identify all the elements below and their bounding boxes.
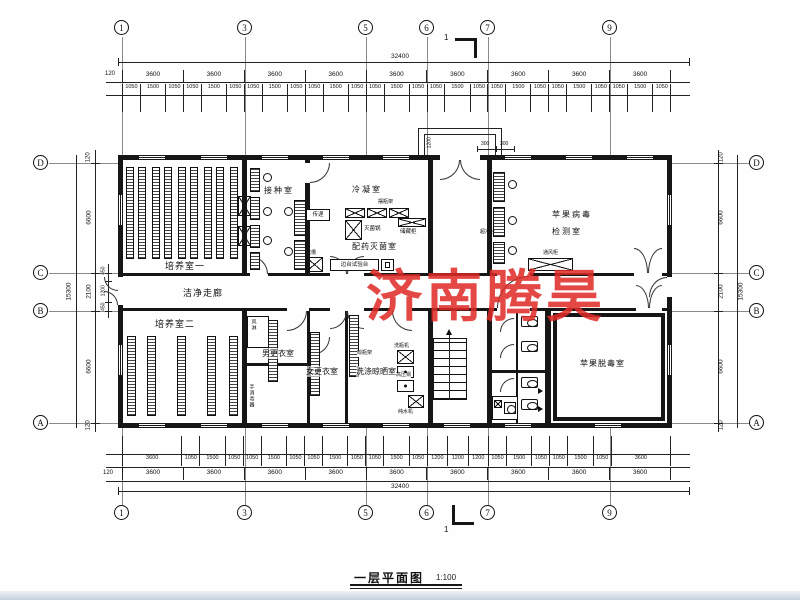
dim-value: 1050 — [305, 84, 323, 95]
dim-overall-right: 15300 — [737, 279, 744, 305]
dim-line — [118, 491, 690, 492]
culture-rack-icon — [229, 336, 238, 416]
pass-window-box: 传递 — [306, 209, 330, 221]
culture-rack-icon — [207, 336, 216, 416]
dim-value: 1050 — [122, 84, 140, 95]
dim-value: 1050 — [348, 84, 366, 95]
room-label-culture1: 培养室一 — [150, 259, 220, 272]
dim-offset-bottom: 120 — [103, 470, 113, 477]
grid-line-D — [49, 163, 118, 164]
dim-value: 1500 — [566, 84, 591, 95]
dim-value: 1050 — [487, 95, 505, 112]
dim-entrance-300a: 300 — [481, 142, 489, 148]
dim-value: 1050 — [225, 455, 243, 466]
dim-value: 3600 — [305, 468, 366, 480]
dim-value: 1500 — [505, 84, 530, 95]
bench-icon — [367, 208, 387, 218]
dim-value: 1500 — [567, 455, 592, 466]
storage-label: 储藏柜 — [400, 229, 417, 235]
bench-icon — [345, 208, 365, 218]
dim-value: 1050 — [549, 455, 567, 466]
dim-value: 1050 — [347, 436, 365, 454]
window — [139, 423, 165, 428]
dim-value: 1500 — [505, 95, 530, 112]
window — [505, 423, 531, 428]
dim-value: 1500 — [383, 436, 408, 454]
toilet-icon — [521, 341, 538, 352]
dim-value: 1500 — [444, 84, 469, 95]
grid-bubble-bottom-9: 9 — [602, 505, 617, 520]
window — [201, 423, 227, 428]
section-mark-bottom-label: 1 — [444, 526, 448, 535]
dim-value: 1050 — [548, 84, 566, 95]
watermark-text: 济南腾昊 — [366, 252, 606, 333]
grid-bubble-bottom-7: 7 — [480, 505, 495, 520]
dim-value: 1050 — [487, 84, 505, 95]
toilet-bowl — [527, 402, 538, 410]
dim-value: 1050 — [183, 84, 201, 95]
dim-value: 1500 — [199, 436, 224, 454]
dim-value: 1200 — [447, 436, 467, 454]
dim-value: 3600 — [366, 70, 427, 82]
dim-value: 1500 — [383, 455, 408, 466]
culture-rack-icon — [177, 336, 186, 416]
dim-line — [95, 150, 96, 432]
dim-value: 1500 — [201, 95, 226, 112]
dim-right-offset-bottom: 120 — [719, 418, 726, 432]
dim-value: 1500 — [506, 436, 531, 454]
clean-bench-icon — [250, 168, 260, 192]
dim-line — [106, 82, 690, 83]
room-label-corridor: 洁净走廊 — [183, 286, 223, 299]
dim-value: 1500 — [322, 455, 347, 466]
grid-bubble-top-5: 5 — [358, 20, 373, 35]
washbasin-icon — [504, 402, 516, 414]
dim-value: 3600 — [244, 468, 305, 480]
stool-icon — [263, 173, 272, 182]
dim-value: 1050 — [470, 95, 488, 112]
dim-value: 1050 — [305, 95, 323, 112]
water-purifier-icon — [408, 395, 424, 408]
clean-bench-icon — [250, 225, 260, 248]
dim-right-6600b: 6600 — [717, 354, 724, 380]
dim-value: 1050 — [304, 455, 322, 466]
window — [667, 195, 672, 225]
dim-row-bottom-fine: 3600105015001050105015001050105015001050… — [122, 455, 671, 466]
drawing-scale: 1:100 — [436, 573, 456, 582]
dim-tick — [689, 487, 690, 495]
dim-value: 1050 — [593, 455, 611, 466]
dim-value: 1500 — [140, 84, 165, 95]
water-purifier-label: 纯水机 — [398, 410, 413, 416]
door-arc-stall-2 — [500, 344, 514, 358]
dim-value: 1500 — [322, 436, 347, 454]
title-underline-thin — [350, 588, 462, 589]
door-opening — [118, 277, 123, 305]
wall-v-washing — [345, 311, 348, 423]
dim-tick — [689, 58, 690, 66]
section-mark-bottom-line — [452, 522, 474, 525]
dim-value: 1500 — [567, 436, 592, 454]
grid-bubble-top-9: 9 — [602, 20, 617, 35]
door-arc-men-changing — [287, 311, 307, 331]
dim-value: 1050 — [243, 455, 261, 466]
dim-value: 1500 — [506, 455, 531, 466]
dim-value: 1050 — [286, 436, 304, 454]
dim-value: 1050 — [226, 84, 244, 95]
dim-row-bottom-bays: 360036003600360036003600360036003600 — [122, 468, 671, 480]
dim-value: 1050 — [366, 84, 384, 95]
dim-line — [118, 62, 690, 63]
dim-value: 1050 — [409, 84, 427, 95]
dim-value: 1050 — [225, 436, 243, 454]
dim-value: 1050 — [165, 95, 183, 112]
dim-left-6600b: 6600 — [85, 354, 92, 380]
dim-value: 3600 — [426, 70, 487, 82]
dim-value: 1050 — [165, 84, 183, 95]
dim-left-offset-bottom: 120 — [86, 418, 93, 432]
dim-row-top-windows: 1050150010501050150010501050150010501050… — [122, 84, 671, 95]
door-opening — [667, 277, 672, 297]
pass-box-icon — [238, 226, 251, 246]
dim-left-2100: 2100 — [85, 279, 92, 305]
toilet-bowl — [527, 344, 538, 352]
dim-value: 1050 — [488, 436, 506, 454]
entrance-door-arc-right — [460, 160, 480, 180]
dim-tick — [514, 146, 515, 152]
dim-value: 1500 — [323, 95, 348, 112]
window — [323, 423, 349, 428]
dim-tick — [714, 311, 723, 312]
dim-entrance-300b: 300 — [500, 142, 508, 148]
dim-value: 1500 — [384, 84, 409, 95]
door-arc-detox-left — [636, 285, 649, 308]
floor-drain-icon — [538, 388, 543, 394]
dim-value: 1050 — [531, 455, 549, 466]
dim-value: 1050 — [548, 95, 566, 112]
culture-rack-icon — [126, 167, 134, 259]
dim-value: 1050 — [531, 436, 549, 454]
room-label-virus-test-2: 检测室 — [552, 226, 582, 237]
dim-value: 1050 — [244, 84, 262, 95]
dim-tick — [496, 146, 497, 152]
dim-value: 3600 — [487, 468, 548, 480]
dim-value: 1050 — [530, 95, 548, 112]
stool-icon — [284, 247, 293, 256]
grid-bubble-left-C: C — [33, 265, 48, 280]
dim-left-offset-top: 120 — [86, 150, 93, 164]
dim-value: 1050 — [427, 84, 445, 95]
window — [383, 155, 409, 160]
dim-overall-bottom: 32400 — [380, 483, 420, 490]
window — [323, 155, 349, 160]
dim-value: 1050 — [488, 455, 506, 466]
room-label-women-changing: 女更衣室 — [306, 366, 338, 377]
wall-v-culture1 — [242, 160, 247, 273]
culture-rack-icon — [204, 167, 212, 259]
dim-value: 1050 — [470, 84, 488, 95]
dim-value: 1500 — [261, 436, 286, 454]
dim-value: 3600 — [609, 468, 670, 480]
stool-icon — [263, 236, 272, 245]
dim-value: 1050 — [652, 95, 670, 112]
door-arc-stall-3 — [500, 378, 514, 392]
dim-value: 1050 — [243, 436, 261, 454]
dim-value: 1200 — [468, 436, 488, 454]
clean-bench-icon — [294, 240, 306, 270]
stool-icon — [508, 216, 517, 225]
room-label-washing: 洗涤晾晒室 — [356, 366, 396, 377]
dim-value: 1500 — [444, 95, 469, 112]
grid-bubble-bottom-3: 3 — [237, 505, 252, 520]
clean-bench-icon — [493, 172, 505, 202]
dim-value: 1050 — [591, 95, 609, 112]
dim-right-6600a: 6600 — [717, 205, 724, 231]
grid-bubble-left-B: B — [33, 303, 48, 318]
dim-value: 1050 — [593, 436, 611, 454]
dim-tick — [91, 311, 100, 312]
room-label-virus-test-1: 苹果病毒 — [552, 209, 592, 220]
stool-icon — [508, 180, 517, 189]
culture-rack-icon — [216, 167, 224, 259]
window — [139, 155, 165, 160]
dim-value: 1500 — [201, 84, 226, 95]
dim-value: 1500 — [627, 95, 652, 112]
staircase — [433, 338, 467, 400]
dim-value: 1050 — [348, 95, 366, 112]
culture-rack-icon — [138, 167, 146, 259]
clean-bench-icon — [250, 252, 260, 270]
dim-right-offset-top: 120 — [719, 150, 726, 164]
autoclave-icon — [397, 380, 414, 392]
culture-rack-icon — [147, 336, 156, 416]
dim-value: 3600 — [183, 70, 244, 82]
air-shower-label: 风淋 — [250, 319, 256, 339]
entrance-door-arc-left — [440, 160, 460, 180]
grid-bubble-top-1: 1 — [114, 20, 129, 35]
dim-tick — [91, 423, 100, 424]
dim-value: 3600 — [426, 468, 487, 480]
window — [444, 423, 470, 428]
dim-value: 3600 — [548, 468, 609, 480]
dim-tick — [91, 163, 100, 164]
stair-center-line — [449, 334, 450, 400]
bottle-washer-label: 洗瓶机 — [394, 344, 409, 350]
floor-drain-icon — [538, 406, 543, 412]
dim-value: 1050 — [409, 436, 427, 454]
dim-value: 1050 — [122, 95, 140, 112]
dim-value: 1050 — [365, 455, 383, 466]
culture-rack-icon — [164, 167, 172, 259]
dim-value: 3600 — [611, 436, 670, 454]
grid-bubble-top-7: 7 — [480, 20, 495, 35]
toilet-icon — [521, 399, 538, 410]
drying-rack-label: 晾瓶架 — [357, 351, 372, 357]
window — [667, 345, 672, 375]
dim-tick — [91, 273, 100, 274]
dim-value: 3600 — [366, 468, 427, 480]
grid-bubble-right-A: A — [749, 415, 764, 430]
dim-value: 1200 — [427, 455, 447, 466]
dim-value: 3600 — [487, 70, 548, 82]
window — [566, 155, 592, 160]
culture-rack-icon — [178, 167, 186, 259]
dim-value: 1050 — [347, 455, 365, 466]
window — [595, 423, 621, 428]
dim-value: 3600 — [609, 70, 670, 82]
dim-value: 3600 — [122, 468, 183, 480]
window — [118, 195, 123, 225]
section-mark-top-label: 1 — [444, 34, 448, 43]
stool-icon — [263, 207, 272, 216]
storage-cabinet-icon — [398, 218, 426, 227]
grid-line-A — [49, 423, 118, 424]
dim-value: 1500 — [627, 84, 652, 95]
window — [505, 155, 531, 160]
stool-icon — [284, 207, 293, 216]
grid-bubble-right-B: B — [749, 303, 764, 318]
dim-overall-top: 32400 — [380, 53, 420, 60]
dim-value: 1500 — [566, 95, 591, 112]
dim-row-top-bays: 360036003600360036003600360036003600 — [122, 70, 671, 82]
hand-sanitizer-label: 手消毒器 — [248, 384, 254, 418]
dim-value: 1050 — [530, 84, 548, 95]
autoclave-label: 高压锅 — [396, 373, 411, 379]
room-label-men-changing: 男更衣室 — [262, 348, 294, 359]
dim-value: 1500 — [262, 84, 287, 95]
dim-value: 3600 — [122, 455, 181, 466]
dim-value: 1050 — [609, 95, 627, 112]
dim-value: 3600 — [122, 70, 183, 82]
dim-value: 3600 — [611, 455, 670, 466]
toilet-bowl — [527, 380, 538, 388]
bench-icon — [389, 208, 409, 218]
dim-value: 1050 — [609, 84, 627, 95]
dim-value: 1050 — [427, 95, 445, 112]
sink-basin-icon — [494, 400, 502, 408]
dim-value: 1200 — [427, 436, 447, 454]
dim-offset-top: 120 — [105, 71, 115, 78]
clean-bench-label: 超净台 — [480, 230, 495, 236]
door-opening — [636, 308, 662, 311]
grid-bubble-top-6: 6 — [419, 20, 434, 35]
dim-comb-top: 1050150010501050150010501050150010501050… — [122, 95, 671, 112]
door-arc-corridor-east — [649, 277, 667, 297]
dim-value: 1200 — [468, 455, 488, 466]
door-opening — [634, 273, 662, 276]
dim-value: 1050 — [181, 455, 199, 466]
grid-bubble-bottom-1: 1 — [114, 505, 129, 520]
sterilizer-label: 灭菌锅 — [364, 226, 381, 232]
window — [262, 423, 288, 428]
bottle-shelf-label: 摆瓶架 — [378, 200, 393, 206]
locker-icon — [310, 332, 320, 396]
sink-label: 洗槽 — [306, 251, 316, 257]
room-label-culture2: 培养室二 — [140, 317, 210, 330]
dim-entrance-depth: 1200 — [427, 134, 433, 152]
dim-value: 3600 — [548, 70, 609, 82]
dim-tick — [118, 58, 119, 66]
dim-value: 1500 — [140, 95, 165, 112]
grid-bubble-bottom-5: 5 — [358, 505, 373, 520]
culture-rack-icon — [230, 167, 238, 259]
dim-value: 1050 — [244, 95, 262, 112]
clean-bench-icon — [294, 200, 306, 236]
page-bottom-strip — [0, 591, 800, 600]
grid-bubble-right-D: D — [749, 155, 764, 170]
grid-bubble-right-C: C — [749, 265, 764, 280]
grid-bubble-left-D: D — [33, 155, 48, 170]
dim-tick — [477, 146, 478, 152]
dim-left-6600a: 6600 — [85, 205, 92, 231]
grid-bubble-left-A: A — [33, 415, 48, 430]
dim-tick — [118, 487, 119, 495]
dim-value: 1500 — [323, 84, 348, 95]
dim-value: 1050 — [304, 436, 322, 454]
clean-bench-icon — [250, 197, 260, 220]
dim-value: 1050 — [287, 84, 305, 95]
dim-line — [106, 481, 690, 482]
dim-value: 1050 — [181, 436, 199, 454]
door-arc-virus-test-right — [648, 248, 662, 273]
dim-value: 3600 — [305, 70, 366, 82]
dim-value: 1500 — [199, 455, 224, 466]
window — [118, 345, 123, 375]
dim-overall-left: 15300 — [65, 279, 72, 305]
dim-value: 3600 — [122, 436, 181, 454]
dim-value: 1050 — [287, 95, 305, 112]
door-arc-virus-test-left — [634, 248, 648, 273]
dim-value: 1500 — [262, 95, 287, 112]
floor-plan-sheet: 1 3 5 6 7 9 1 3 5 6 7 9 D C B A D C B A … — [0, 0, 800, 600]
dim-value: 3600 — [183, 468, 244, 480]
dim-comb-bottom: 3600105015001050105015001050105015001050… — [122, 436, 671, 454]
dim-value: 1050 — [183, 95, 201, 112]
toilet-icon — [521, 377, 538, 388]
dim-value: 3600 — [244, 70, 305, 82]
dim-value: 1050 — [652, 84, 670, 95]
wall-toilet-mid — [492, 370, 545, 373]
window — [262, 155, 288, 160]
dim-right-2100: 2100 — [717, 279, 724, 305]
grid-bubble-top-3: 3 — [237, 20, 252, 35]
room-label-prep: 配药灭菌室 — [352, 241, 397, 252]
grid-bubble-bottom-6: 6 — [419, 505, 434, 520]
window — [383, 423, 409, 428]
dim-value: 1050 — [226, 95, 244, 112]
dim-value: 1050 — [286, 455, 304, 466]
dim-value: 1050 — [591, 84, 609, 95]
room-label-detox: 苹果脱毒室 — [580, 358, 625, 369]
section-mark-top-line — [474, 38, 477, 58]
culture-rack-icon — [190, 167, 198, 259]
dim-value: 1050 — [549, 436, 567, 454]
dim-value: 1500 — [261, 455, 286, 466]
pass-box-icon — [238, 196, 251, 216]
dim-value: 1200 — [447, 455, 467, 466]
dim-line — [76, 155, 77, 428]
window — [627, 155, 653, 160]
sterilizer-icon — [345, 220, 362, 240]
bottle-washer-icon — [397, 350, 414, 364]
door-arc-corridor-west-bottom — [104, 291, 118, 305]
dim-value: 1050 — [365, 436, 383, 454]
sink-icon — [306, 257, 323, 272]
title-underline-thick — [350, 584, 462, 586]
dim-value: 1050 — [409, 455, 427, 466]
washbasin-bowl — [507, 405, 516, 414]
culture-rack-icon — [127, 336, 136, 416]
